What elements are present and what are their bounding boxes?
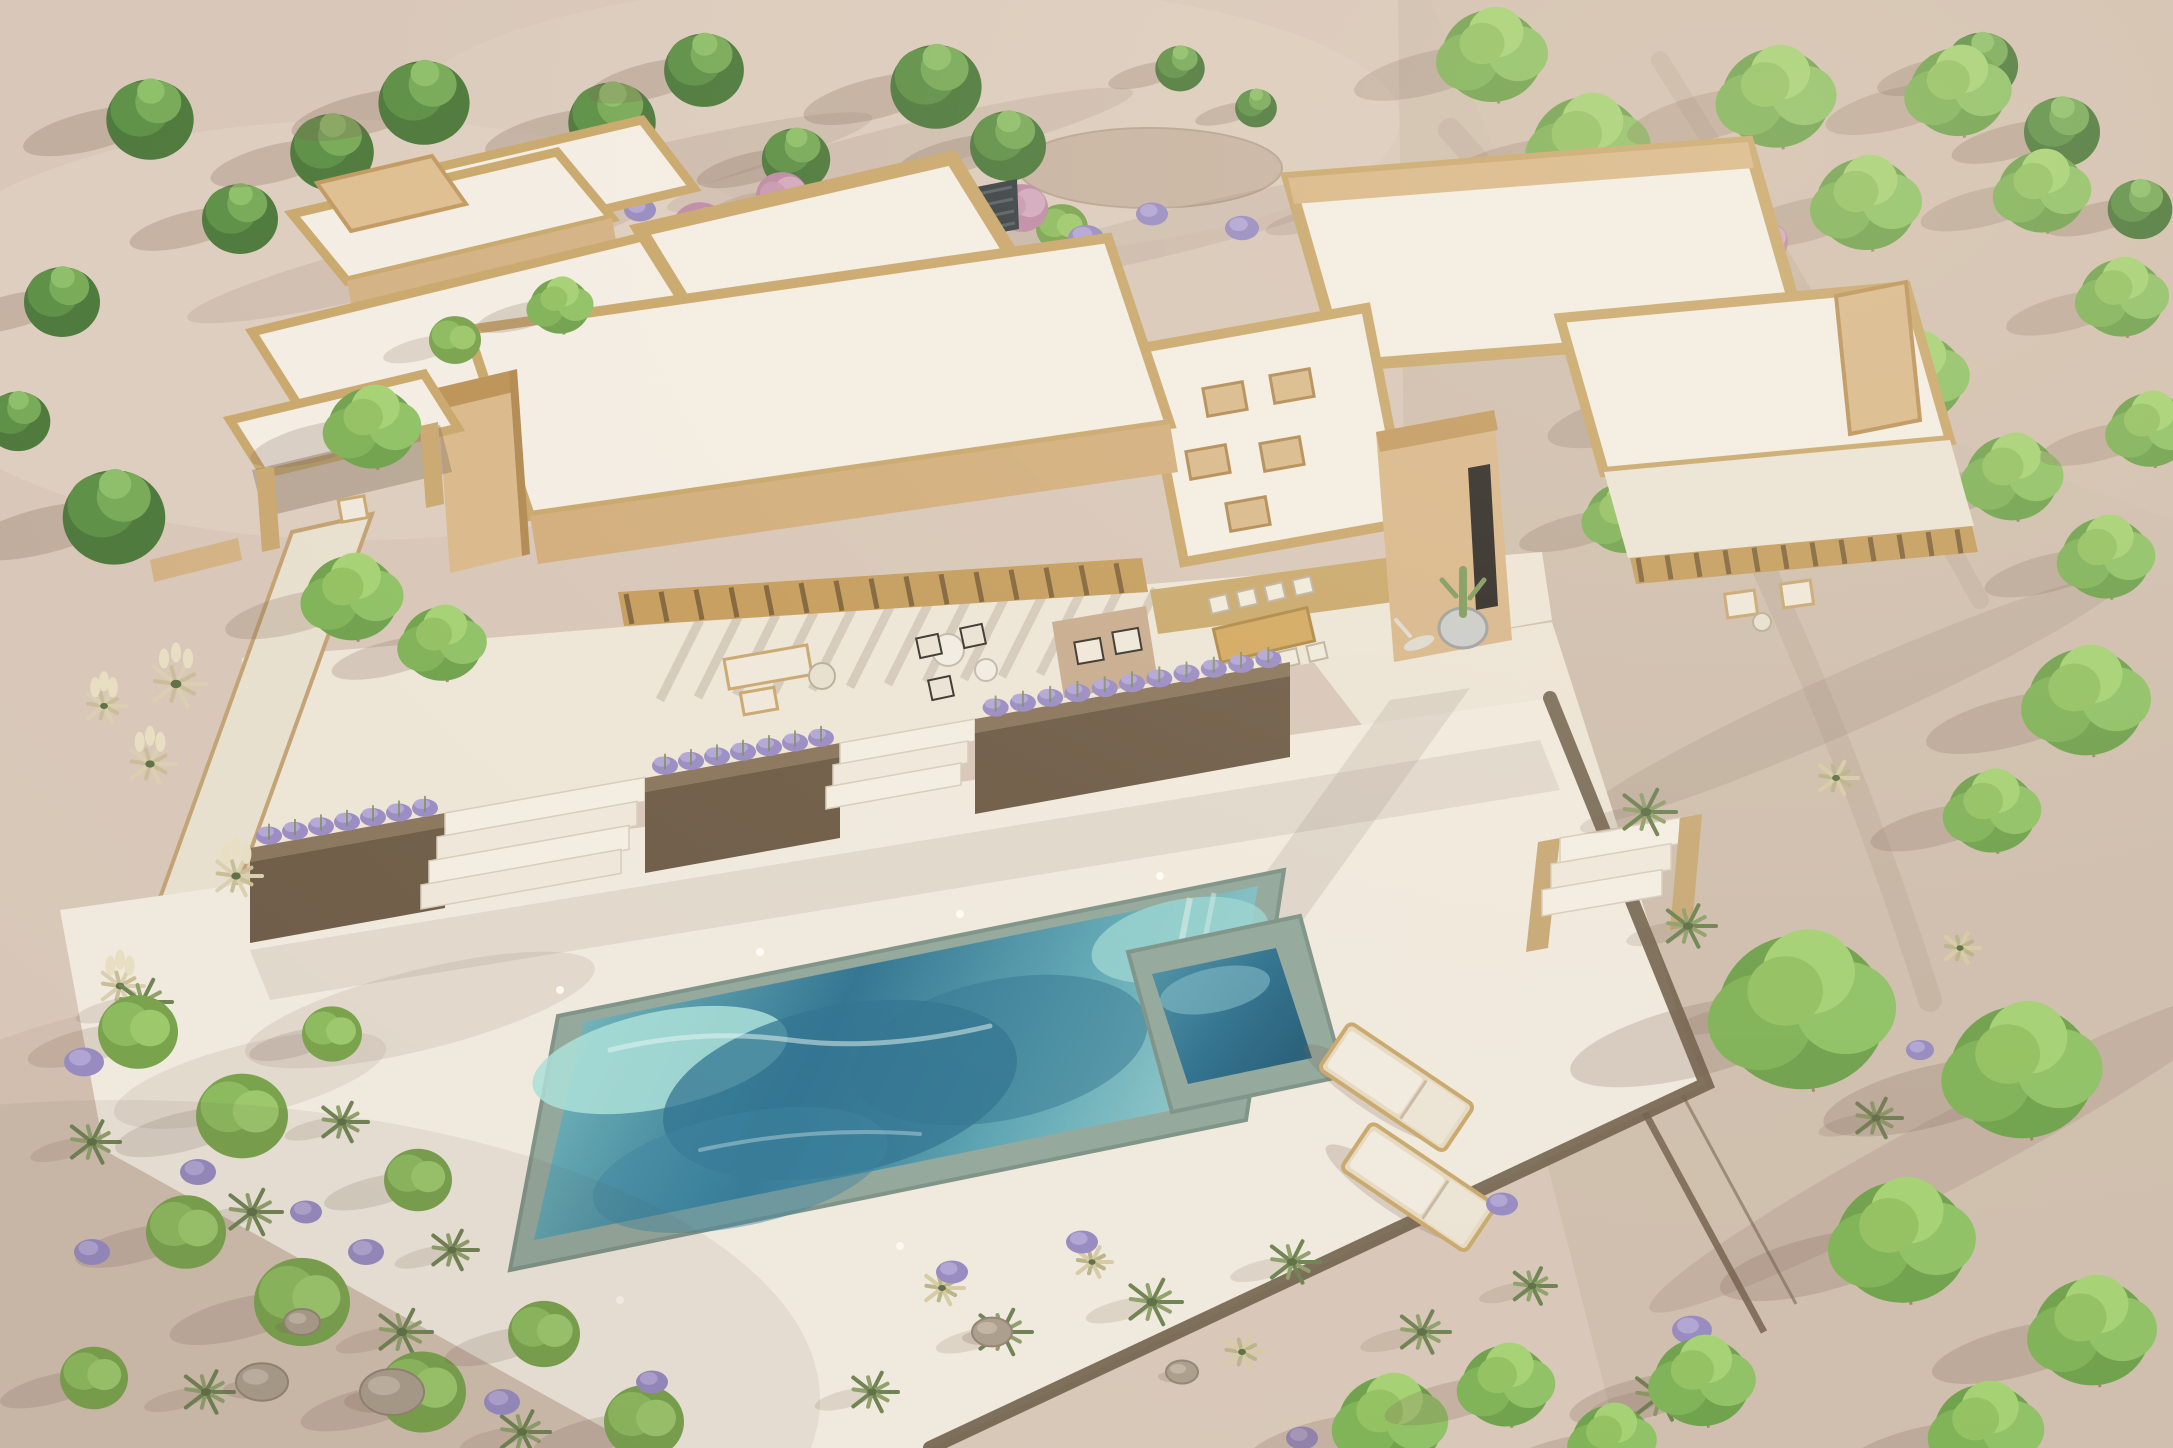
layer-effects bbox=[0, 0, 2173, 1448]
warm-glow bbox=[0, 0, 2173, 1448]
aerial-rendering bbox=[0, 0, 2173, 1448]
rendering-canvas bbox=[0, 0, 2173, 1448]
